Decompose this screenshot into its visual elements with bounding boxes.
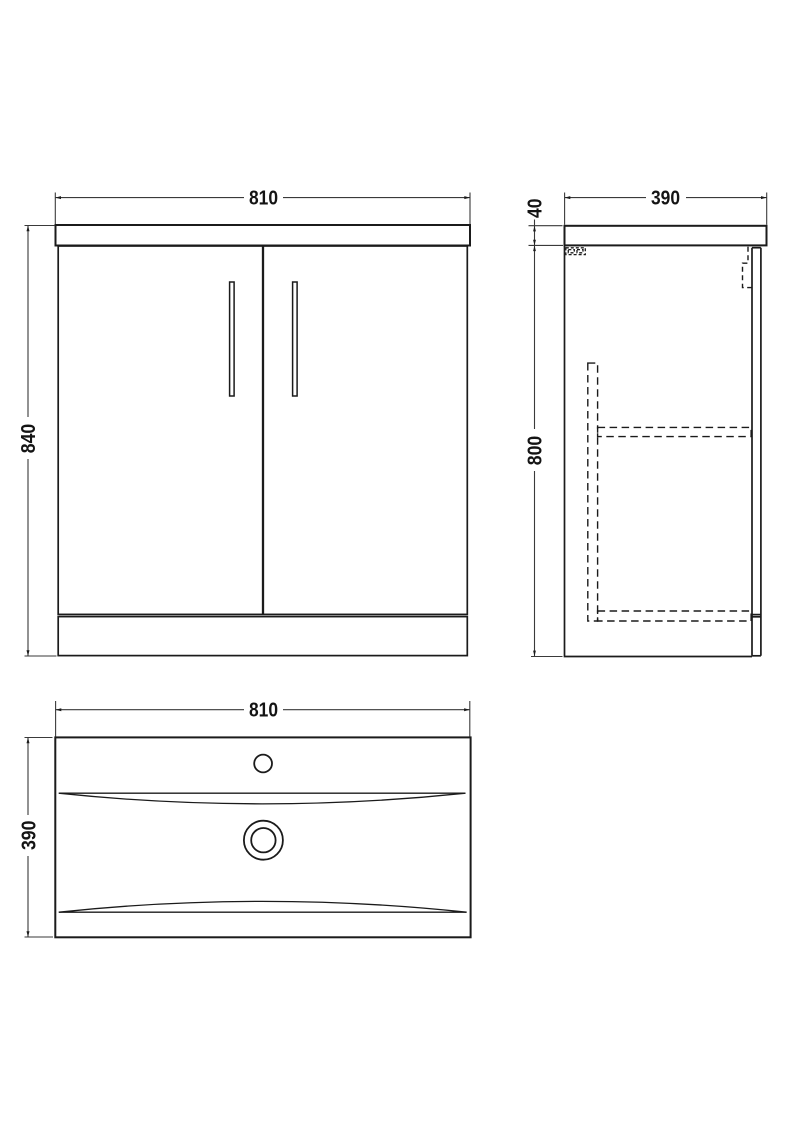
- svg-text:840: 840: [17, 424, 40, 454]
- svg-text:390: 390: [651, 186, 680, 209]
- svg-text:390: 390: [18, 821, 41, 851]
- svg-text:40: 40: [524, 199, 547, 219]
- svg-text:810: 810: [249, 699, 278, 722]
- svg-text:810: 810: [249, 186, 278, 209]
- svg-text:800: 800: [524, 436, 547, 466]
